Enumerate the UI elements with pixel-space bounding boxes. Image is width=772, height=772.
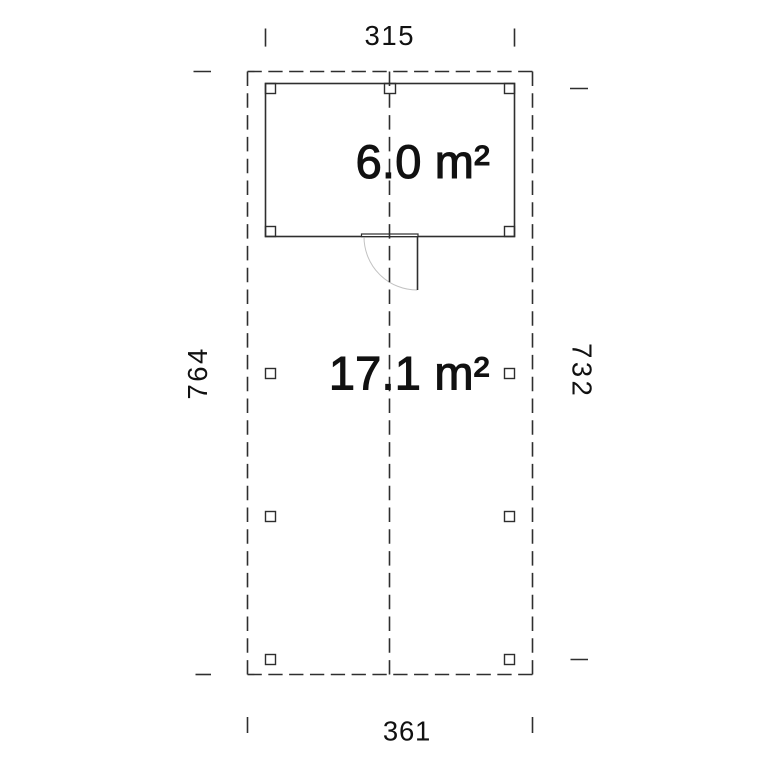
svg-text:361: 361 xyxy=(383,716,431,747)
svg-text:732: 732 xyxy=(567,343,598,399)
svg-text:17.1 m²: 17.1 m² xyxy=(329,347,490,400)
svg-text:764: 764 xyxy=(182,346,213,399)
svg-text:6.0 m²: 6.0 m² xyxy=(356,135,490,188)
svg-text:315: 315 xyxy=(364,20,415,51)
